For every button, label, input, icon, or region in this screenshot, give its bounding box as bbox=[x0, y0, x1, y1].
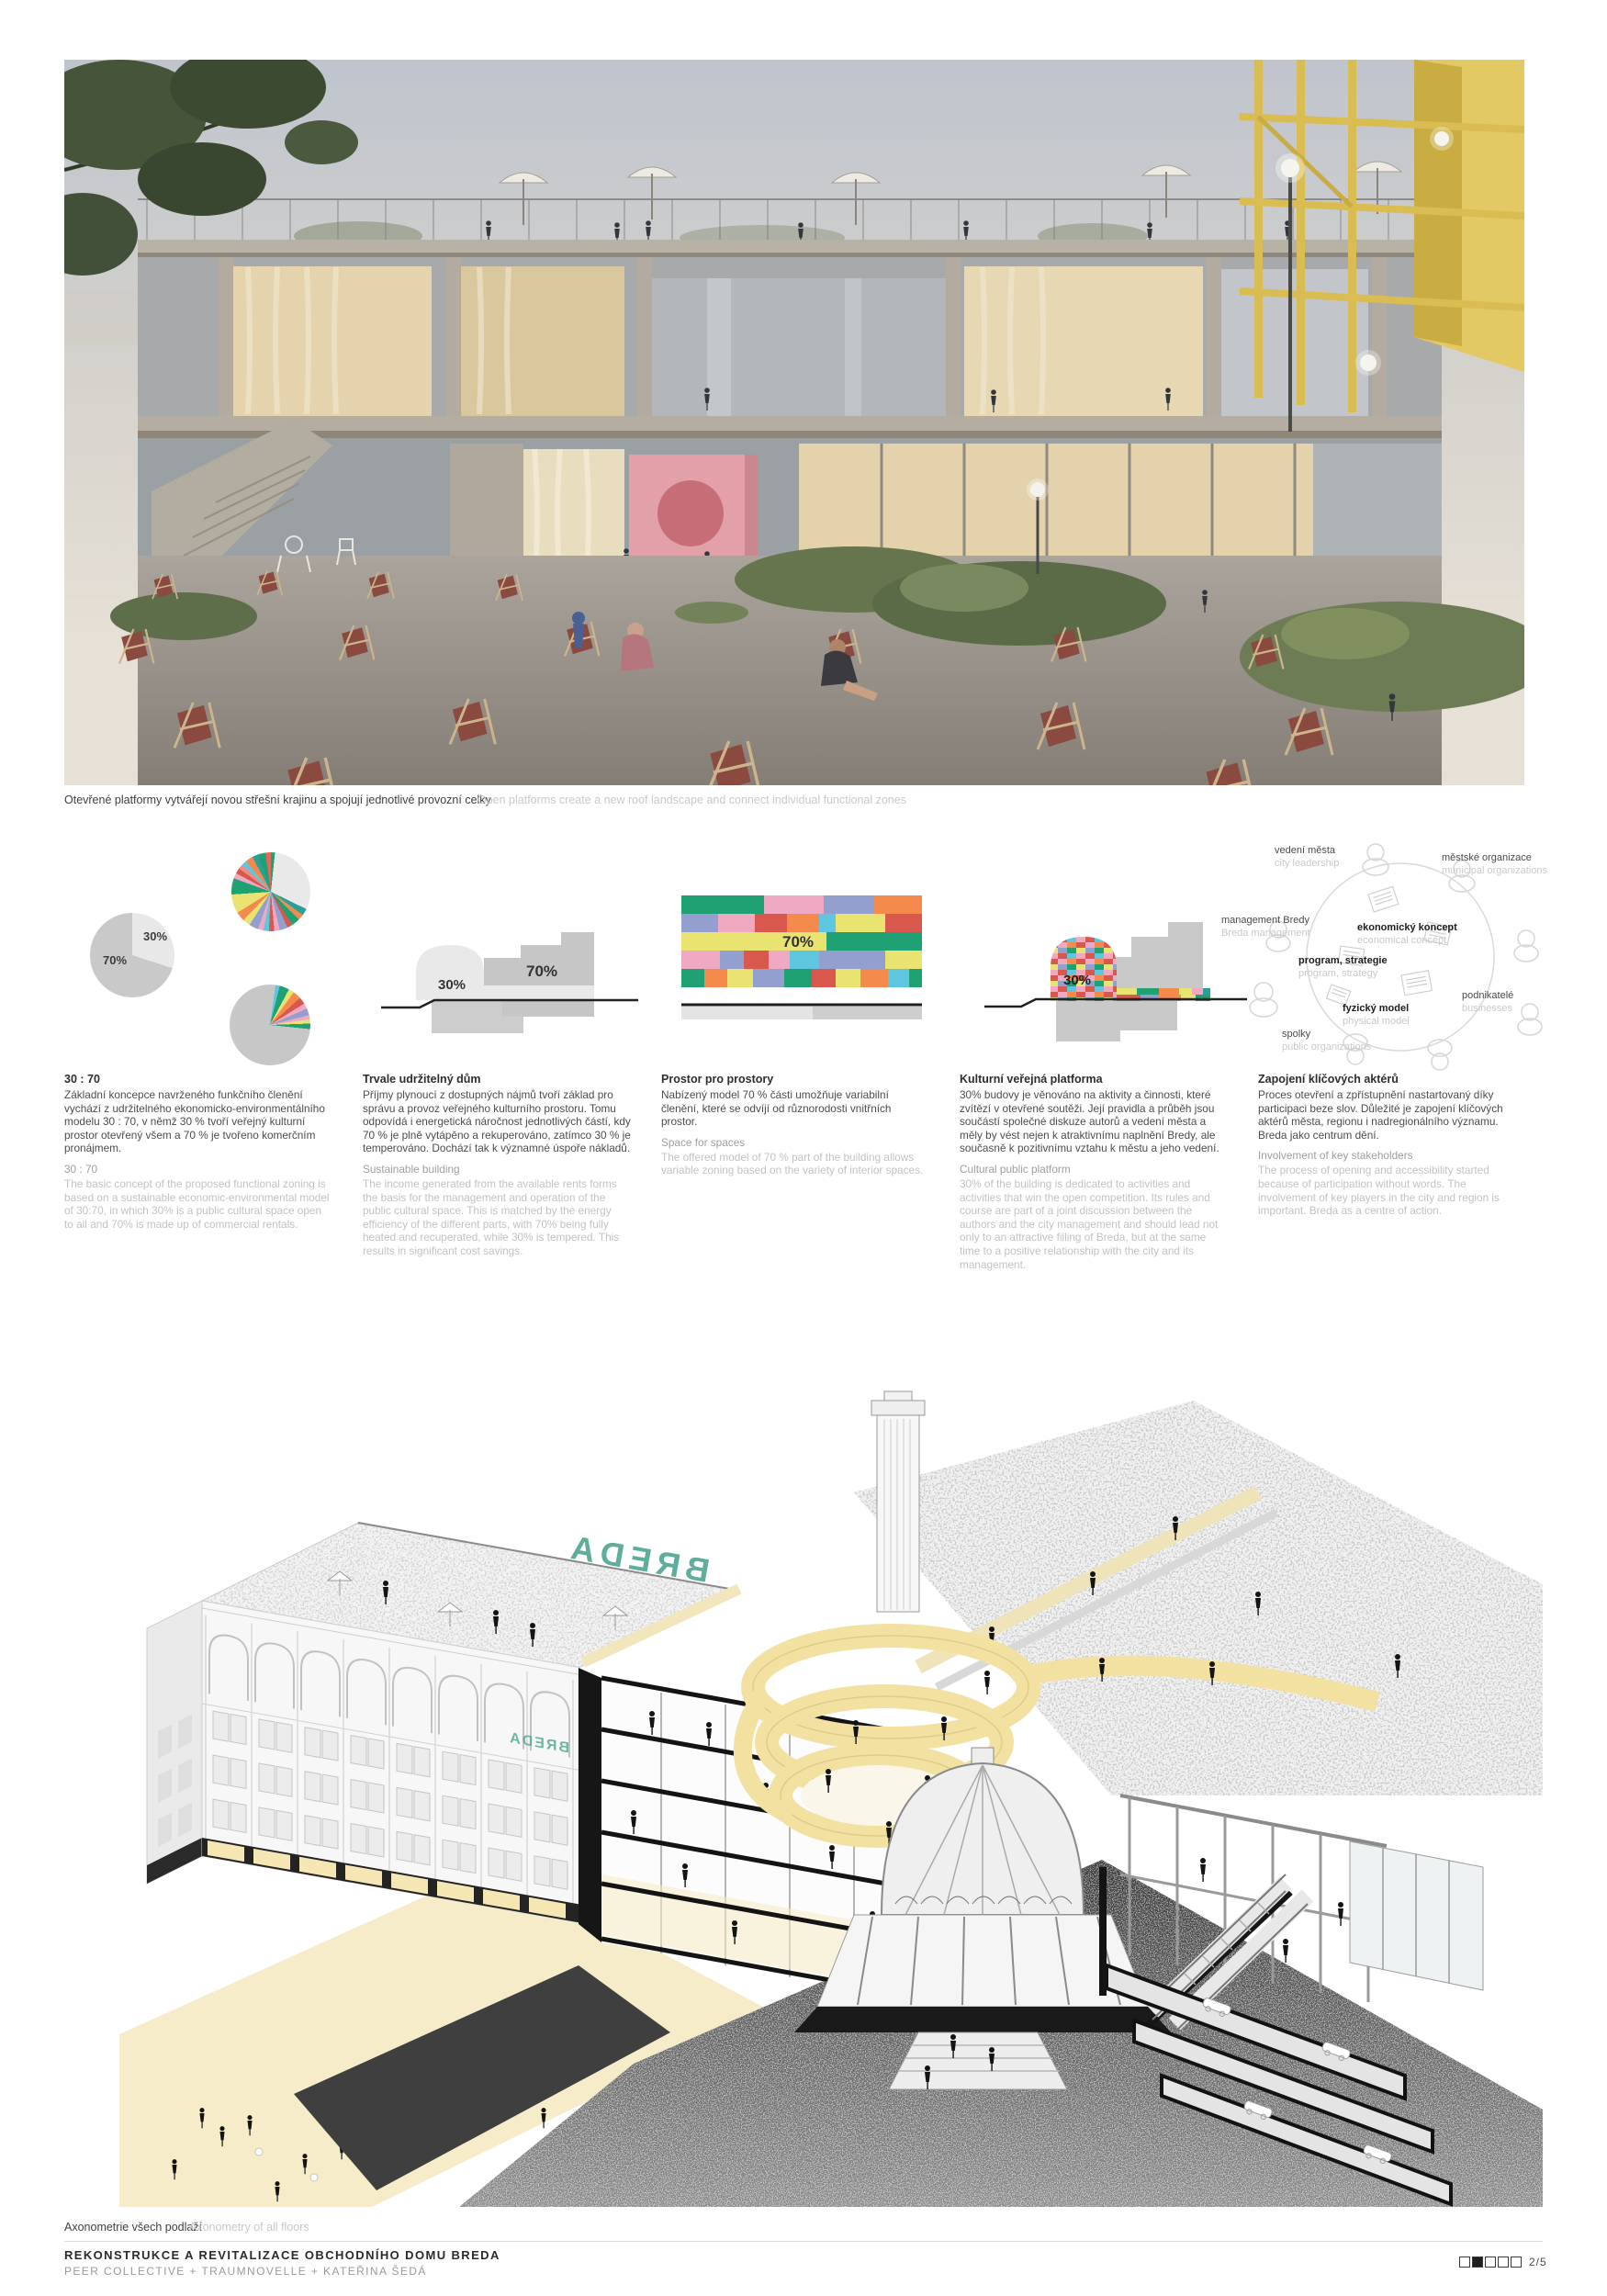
pie-label-30: 30% bbox=[143, 929, 167, 943]
hero-render bbox=[64, 60, 1524, 785]
column-title: Trvale udržitelný dům bbox=[363, 1073, 631, 1086]
page-indicator: 2/5 bbox=[1459, 2256, 1547, 2268]
text-column-stakeholders: Zapojení klíčových aktérů Proces otevřen… bbox=[1258, 1073, 1526, 1218]
network-label-businesses: podnikatelébusinesses bbox=[1462, 990, 1513, 1015]
footer-divider bbox=[64, 2241, 1543, 2242]
section-diagram-colored: 30% bbox=[984, 893, 1247, 1058]
column-title: Zapojení klíčových aktérů bbox=[1258, 1073, 1526, 1086]
column-body-cs: Příjmy plynoucí z dostupných nájmů tvoří… bbox=[363, 1088, 631, 1155]
presentation-board: Otevřené platformy vytvářejí novou střeš… bbox=[0, 0, 1607, 2296]
network-label-program-strategy: program, strategieprogram, strategy bbox=[1298, 955, 1388, 980]
text-column-space: Prostor pro prostory Nabízený model 70 %… bbox=[661, 1073, 929, 1177]
column-title-en: Sustainable building bbox=[363, 1163, 631, 1176]
pie-chart-tenant-mix-70 bbox=[231, 852, 310, 931]
column-title: Kulturní veřejná platforma bbox=[960, 1073, 1228, 1086]
network-label-city-leadership: vedení městacity leadership bbox=[1275, 845, 1339, 870]
network-label-economical-concept: ekonomický koncepteconomical concept bbox=[1357, 922, 1457, 947]
section-colored-label-30: 30% bbox=[1063, 973, 1091, 988]
column-body-en: 30% of the building is dedicated to acti… bbox=[960, 1177, 1228, 1271]
column-title: Prostor pro prostory bbox=[661, 1073, 929, 1086]
column-body-cs: Proces otevření a zpřístupnění nastartov… bbox=[1258, 1088, 1526, 1142]
page-square-4 bbox=[1498, 2257, 1509, 2268]
page-square-2-current bbox=[1472, 2257, 1483, 2268]
roof-terrace bbox=[110, 536, 1524, 785]
column-title: 30 : 70 bbox=[64, 1073, 332, 1086]
network-label-municipal-organizations: městské organizacemunicipal organization… bbox=[1442, 852, 1547, 877]
pink-installation bbox=[629, 455, 758, 570]
pie-chart-30-70: 30% 70% bbox=[90, 913, 174, 997]
column-title-en: Involvement of key stakeholders bbox=[1258, 1149, 1526, 1162]
network-label-public-organizations: spolkypublic organizations bbox=[1282, 1029, 1371, 1053]
mosaic-label-70: 70% bbox=[782, 933, 814, 951]
page-square-1 bbox=[1459, 2257, 1470, 2268]
axon-caption-cs: Axonometrie všech podlaží bbox=[64, 2221, 202, 2234]
pie-chart-tenant-mix-30 bbox=[230, 985, 310, 1065]
column-body-cs: Základní koncepce navrženého funkčního č… bbox=[64, 1088, 332, 1155]
hero-render-illustration bbox=[64, 60, 1524, 785]
column-body-en: The basic concept of the proposed functi… bbox=[64, 1177, 332, 1231]
column-body-cs: Nabízený model 70 % části umožňuje varia… bbox=[661, 1088, 929, 1129]
hero-caption-cs: Otevřené platformy vytvářejí novou střeš… bbox=[64, 793, 491, 806]
column-title-en: Cultural public platform bbox=[960, 1163, 1228, 1176]
column-body-en: The offered model of 70 % part of the bu… bbox=[661, 1151, 929, 1177]
colored-dome bbox=[1051, 937, 1117, 1001]
ventilation-tower bbox=[871, 1391, 925, 1612]
pie-label-70: 70% bbox=[103, 953, 127, 967]
page-square-3 bbox=[1485, 2257, 1496, 2268]
text-column-30-70: 30 : 70 Základní koncepce navrženého fun… bbox=[64, 1073, 332, 1231]
project-authors: PEER COLLECTIVE + TRAUMNOVELLE + KATEŘIN… bbox=[64, 2265, 427, 2278]
section-gray-label-30: 30% bbox=[438, 977, 466, 993]
text-column-sustainable: Trvale udržitelný dům Příjmy plynoucí z … bbox=[363, 1073, 631, 1258]
page-number: 2/5 bbox=[1529, 2256, 1547, 2268]
column-body-en: The process of opening and accessibility… bbox=[1258, 1164, 1526, 1217]
stakeholder-network-diagram: vedení městacity leadership městské orga… bbox=[1221, 838, 1579, 1076]
section-gray-label-70: 70% bbox=[526, 962, 557, 980]
mosaic-diagram: 70% bbox=[681, 895, 922, 1029]
page-square-5 bbox=[1511, 2257, 1522, 2268]
project-title: REKONSTRUKCE A REVITALIZACE OBCHODNÍHO D… bbox=[64, 2248, 500, 2262]
network-label-physical-model: fyzický modelphysical model bbox=[1343, 1003, 1410, 1028]
column-body-en: The income generated from the available … bbox=[363, 1177, 631, 1258]
upper-glass-level bbox=[138, 257, 1442, 438]
hero-caption-en: Open platforms create a new roof landsca… bbox=[478, 793, 906, 806]
column-body-cs: 30% budovy je věnováno na aktivity a čin… bbox=[960, 1088, 1228, 1155]
axonometric-drawing: BREDA bbox=[64, 1364, 1543, 2213]
column-title-en: 30 : 70 bbox=[64, 1163, 332, 1176]
network-label-breda-management: management BredyBreda management bbox=[1221, 915, 1310, 940]
section-diagram-gray: 30% 70% bbox=[381, 905, 638, 1056]
text-column-platform: Kulturní veřejná platforma 30% budovy je… bbox=[960, 1073, 1228, 1271]
axon-caption-en: Axonometry of all floors bbox=[189, 2221, 309, 2234]
column-title-en: Space for spaces bbox=[661, 1136, 929, 1149]
